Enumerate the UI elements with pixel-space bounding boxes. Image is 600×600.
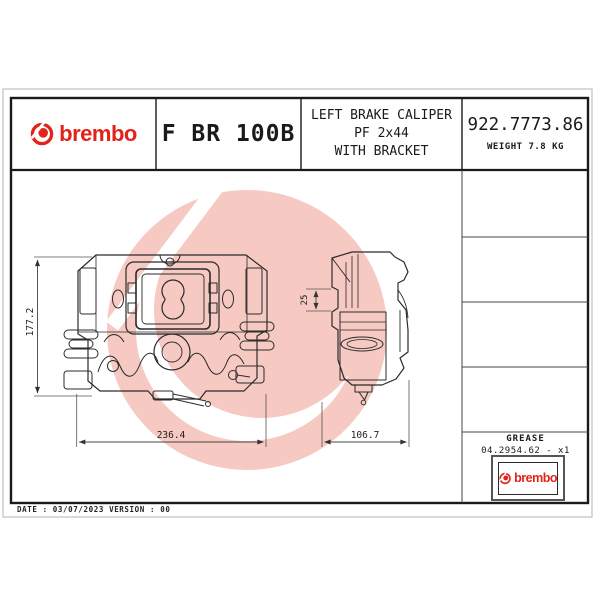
brembo-logo: brembo <box>30 122 137 146</box>
description-line-2: PF 2x44 <box>354 125 409 143</box>
dim-front-width-label: 236.4 <box>157 430 186 441</box>
datasheet-page: 236.4 106.7 177.2 25 brembo F BR 100B LE… <box>0 0 600 600</box>
brembo-roundel-icon-small <box>499 472 511 485</box>
brembo-wordmark-small: brembo <box>514 472 557 485</box>
grease-cell: GREASE 04.2954.62 - x1 <box>462 434 589 456</box>
part-number-cell: 922.7773.86 WEIGHT 7.8 KG <box>462 97 589 170</box>
dim-side-width-label: 106.7 <box>351 430 380 441</box>
product-description: LEFT BRAKE CALIPER PF 2x44 WITH BRACKET <box>301 97 462 170</box>
part-number: 922.7773.86 <box>468 115 584 135</box>
brembo-logo-box: brembo <box>491 455 565 501</box>
revision-date-line: DATE : 03/07/2023 VERSION : 00 <box>17 505 170 514</box>
header-brand-cell: brembo <box>12 99 155 169</box>
dim-front-height-label: 177.2 <box>25 308 36 337</box>
dim-pad-offset-label: 25 <box>300 295 310 306</box>
brembo-logo-small: brembo <box>498 462 558 495</box>
weight-label: WEIGHT 7.8 KG <box>487 142 564 152</box>
brembo-wordmark: brembo <box>59 123 137 145</box>
model-code: F BR 100B <box>156 97 301 170</box>
grease-label: GREASE <box>462 434 589 444</box>
description-line-3: WITH BRACKET <box>335 143 429 161</box>
brembo-roundel-icon <box>30 122 54 146</box>
brembo-watermark-logo <box>112 140 373 456</box>
description-line-1: LEFT BRAKE CALIPER <box>311 107 452 125</box>
